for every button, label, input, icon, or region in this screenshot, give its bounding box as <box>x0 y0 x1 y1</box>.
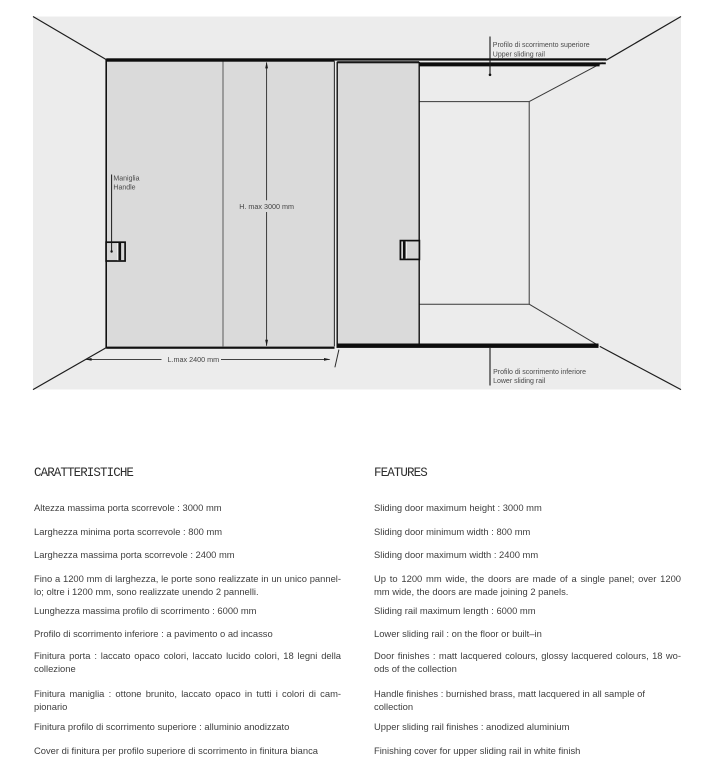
svg-text:L.max 2400 mm: L.max 2400 mm <box>168 355 220 364</box>
svg-text:Profilo di scorrimento superio: Profilo di scorrimento superiore <box>493 42 590 49</box>
svg-text:Handle: Handle <box>113 185 135 192</box>
svg-text:Profilo di scorrimento inferi: Profilo di scorrimento inferiore <box>493 369 586 376</box>
svg-text:Lower sliding rail: Lower sliding rail <box>493 378 546 385</box>
svg-text:H. max 3000 mm: H. max 3000 mm <box>239 202 294 211</box>
svg-text:Maniglia: Maniglia <box>113 176 139 183</box>
svg-text:Upper sliding rail: Upper sliding rail <box>493 52 546 59</box>
